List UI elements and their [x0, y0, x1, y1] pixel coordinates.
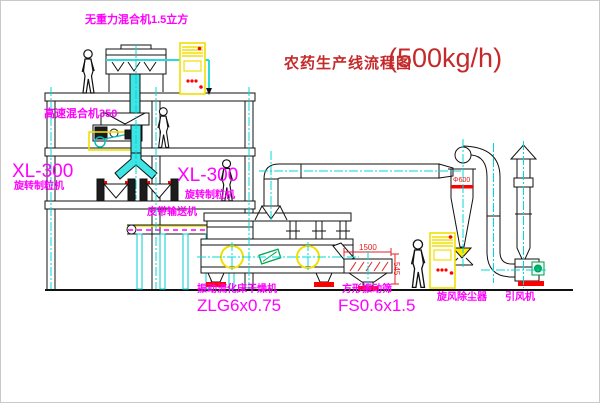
indicator-light [449, 235, 453, 239]
fluid-bed-dryer [201, 213, 354, 287]
label-granulator-mid-name: 旋转制粒机 [185, 191, 235, 201]
dimension-screen-height: 545 [392, 262, 400, 275]
person-figure [158, 108, 169, 148]
label-dryer-name: 振动流化床干燥机 [197, 285, 277, 295]
cyclone-separator [448, 146, 519, 277]
cad-flow-diagram: 无重力混合机1.5立方 农药生产线流程图 (500kg/h) 高速混合机350 … [0, 0, 600, 403]
person-figure [82, 50, 94, 93]
spring-mounts [286, 221, 350, 239]
label-high-speed-mixer: 高速混合机350 [44, 109, 117, 120]
label-granulator-left-model: XL-300 [12, 162, 73, 181]
granulator-left [97, 179, 135, 201]
indicator-light [198, 47, 202, 51]
label-dryer-model: ZLG6x0.75 [197, 297, 281, 314]
control-cabinet-ground [430, 233, 455, 288]
exhaust-duct [255, 164, 453, 220]
person-figure [412, 240, 425, 288]
drawing-title-capacity: (500kg/h) [388, 45, 502, 72]
label-gravity-mixer: 无重力混合机1.5立方 [85, 15, 188, 26]
induced-draft-fan [515, 259, 544, 286]
dimension-cyclone-diameter: Φ600 [453, 177, 470, 184]
label-screen-model: FS0.6x1.5 [338, 297, 416, 314]
label-screen-name: 方形振动筛 [342, 285, 392, 295]
dimension-screen-length: 1500 [359, 244, 377, 252]
label-granulator-mid-model: XL-300 [177, 166, 238, 185]
control-cabinet-top [180, 43, 205, 94]
label-fan: 引风机 [505, 293, 535, 303]
label-cyclone: 旋风除尘器 [437, 293, 487, 303]
label-belt-conveyor: 皮带输送机 [147, 208, 197, 218]
label-granulator-left-name: 旋转制粒机 [14, 182, 64, 192]
